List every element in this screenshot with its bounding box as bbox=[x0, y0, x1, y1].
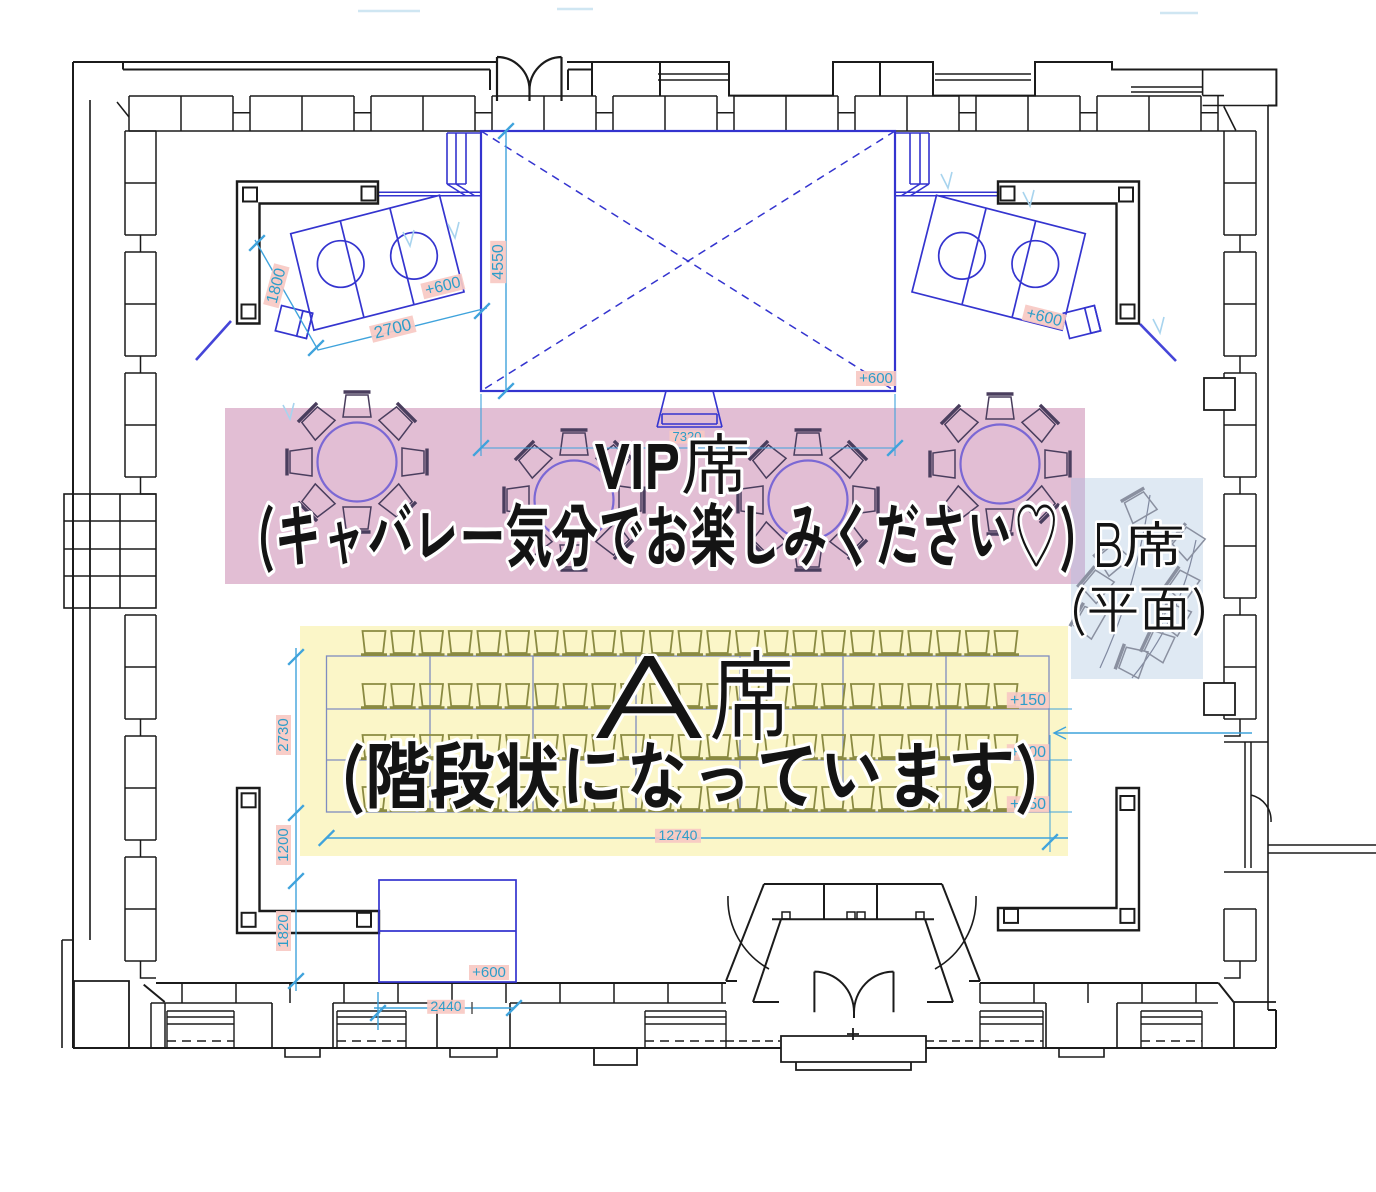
svg-text:+600: +600 bbox=[859, 370, 893, 387]
svg-text:+600: +600 bbox=[472, 964, 506, 981]
svg-text:1200: 1200 bbox=[275, 828, 292, 861]
svg-text:4550: 4550 bbox=[490, 244, 507, 280]
svg-text:2730: 2730 bbox=[275, 718, 292, 751]
svg-text:+150: +150 bbox=[1010, 692, 1046, 709]
svg-text:1820: 1820 bbox=[275, 914, 292, 947]
svg-text:12740: 12740 bbox=[659, 827, 698, 843]
svg-text:2440: 2440 bbox=[430, 998, 461, 1014]
